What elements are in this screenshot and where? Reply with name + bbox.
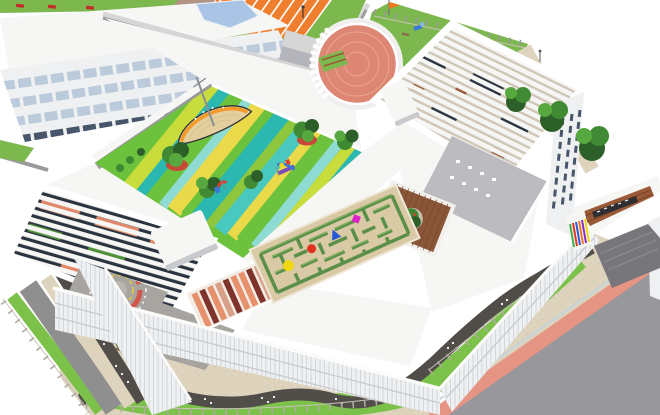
rendering-canvas bbox=[0, 0, 660, 415]
